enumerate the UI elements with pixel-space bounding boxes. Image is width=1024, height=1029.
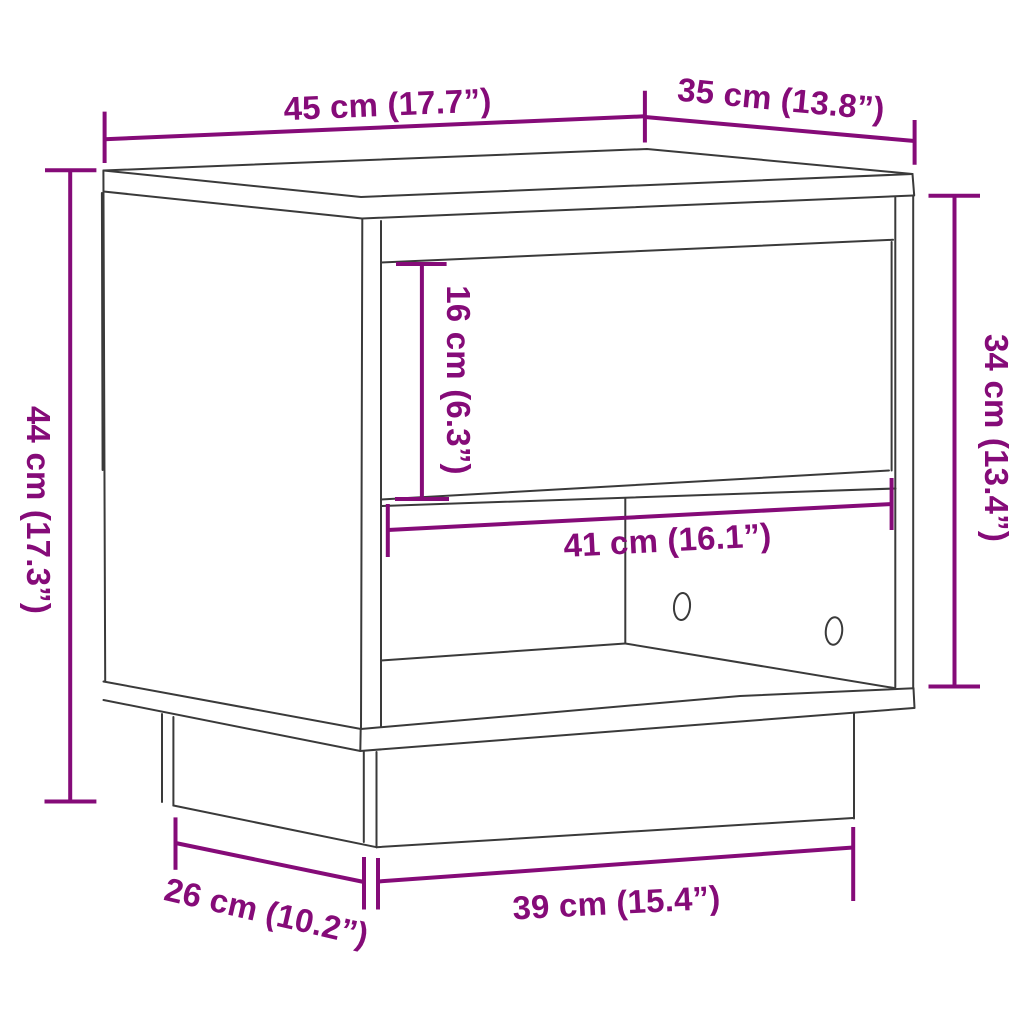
- svg-text:34 cm (13.4”): 34 cm (13.4”): [978, 334, 1015, 542]
- svg-text:16 cm (6.3”): 16 cm (6.3”): [440, 285, 477, 475]
- svg-text:44 cm (17.3”): 44 cm (17.3”): [20, 406, 57, 614]
